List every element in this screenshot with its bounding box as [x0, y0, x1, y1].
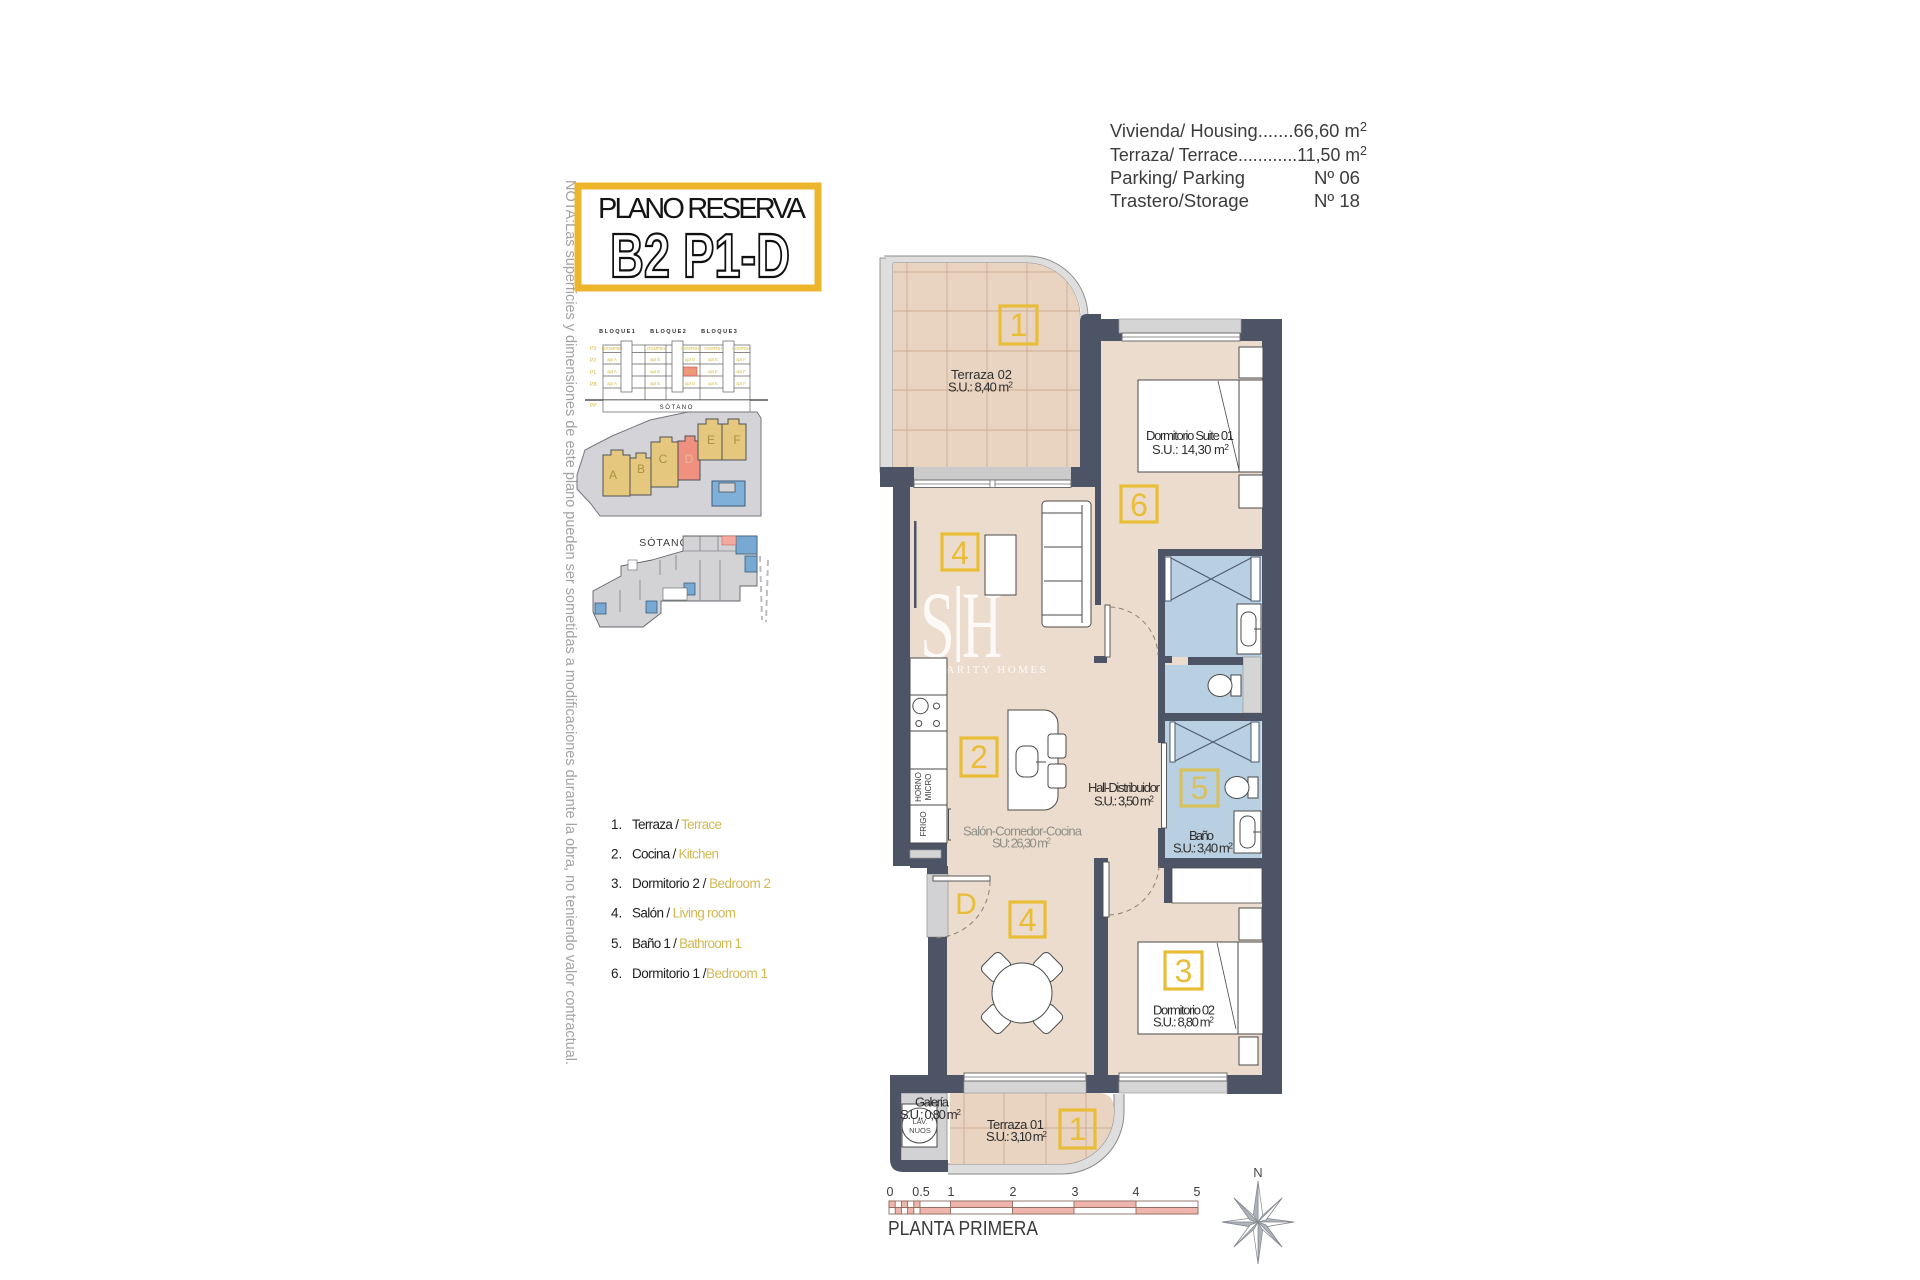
svg-text:AGMFBH: AGMFBH: [681, 346, 699, 351]
svg-text:S.U.: 3,10 m2: S.U.: 3,10 m2: [986, 1129, 1047, 1144]
svg-text:2.: 2.: [611, 847, 622, 862]
svg-text:LOGMFBH: LOGMFBH: [602, 346, 623, 351]
svg-text:apt D: apt D: [685, 357, 695, 362]
svg-text:S Ó T A N O: S Ó T A N O: [660, 404, 693, 411]
svg-text:PLANO RESERVA: PLANO RESERVA: [598, 193, 807, 225]
svg-text:E: E: [707, 433, 715, 447]
svg-text:S.U.: 8,40 m2: S.U.: 8,40 m2: [948, 380, 1013, 395]
svg-text:D: D: [955, 888, 977, 921]
svg-text:F: F: [733, 433, 740, 447]
svg-text:4: 4: [951, 535, 969, 571]
svg-text:C: C: [659, 452, 668, 466]
svg-text:P3: P3: [590, 346, 596, 352]
svg-text:apt E: apt E: [708, 381, 718, 386]
svg-text:P2: P2: [590, 358, 596, 364]
svg-text:Trastero/Storage: Trastero/Storage: [1110, 190, 1249, 211]
svg-text:4.: 4.: [611, 906, 622, 921]
svg-text:NUOS: NUOS: [909, 1126, 931, 1135]
svg-text:Vivienda/ Housing.......66,60: Vivienda/ Housing.......66,60 m2: [1110, 119, 1367, 141]
svg-text:FRIGO: FRIGO: [919, 811, 928, 836]
svg-text:SÓTANO: SÓTANO: [639, 536, 689, 549]
svg-text:P1: P1: [590, 370, 596, 376]
svg-text:A: A: [609, 468, 617, 482]
svg-text:Salón / Living room: Salón / Living room: [632, 906, 736, 921]
svg-text:HORNO: HORNO: [914, 772, 923, 802]
svg-text:Dormitorio Suite 01: Dormitorio Suite 01: [1146, 428, 1234, 443]
svg-text:apt F: apt F: [736, 357, 746, 362]
svg-text:N: N: [1253, 1165, 1262, 1180]
svg-text:Dormitorio 2 / Bedroom 2: Dormitorio 2 / Bedroom 2: [632, 876, 771, 891]
svg-text:apt B: apt B: [650, 357, 660, 362]
svg-text:0: 0: [887, 1185, 894, 1199]
svg-text:S.U.: 0,80 m2: S.U.: 0,80 m2: [900, 1107, 961, 1122]
svg-text:apt D: apt D: [685, 369, 695, 374]
svg-text:B: B: [637, 462, 645, 476]
svg-text:B L O Q U E 1: B L O Q U E 1: [599, 329, 635, 335]
svg-text:apt F: apt F: [736, 381, 746, 386]
svg-text:Nº 18: Nº 18: [1314, 190, 1360, 211]
svg-text:SU: 26,30 m2: SU: 26,30 m2: [992, 836, 1051, 851]
svg-text:apt E: apt E: [708, 369, 718, 374]
svg-text:apt A: apt A: [607, 369, 617, 374]
svg-text:S.U.: 3,40 m2: S.U.: 3,40 m2: [1173, 841, 1233, 856]
svg-text:apt A: apt A: [607, 357, 617, 362]
svg-text:1.: 1.: [611, 817, 622, 832]
svg-text:NOTA:Las superficies y dimensi: NOTA:Las superficies y dimensiones de es…: [562, 180, 578, 1065]
svg-text:Terraza/ Terrace............11: Terraza/ Terrace............11,50 m2: [1110, 143, 1367, 165]
svg-text:apt F: apt F: [736, 369, 746, 374]
svg-text:LOGMFBH: LOGMFBH: [645, 346, 666, 351]
svg-text:S.U.: 14,30 m2: S.U.: 14,30 m2: [1152, 442, 1229, 457]
svg-text:5.: 5.: [611, 936, 622, 951]
svg-text:3: 3: [1072, 1185, 1079, 1199]
svg-text:3.: 3.: [611, 876, 622, 891]
svg-text:Parking/ Parking: Parking/ Parking: [1110, 167, 1245, 188]
svg-text:1: 1: [1069, 1111, 1087, 1147]
svg-text:Terraza / Terrace: Terraza / Terrace: [632, 817, 722, 832]
svg-text:apt E: apt E: [708, 357, 718, 362]
svg-text:0.5: 0.5: [912, 1185, 929, 1199]
svg-text:D: D: [685, 452, 694, 466]
svg-text:1: 1: [1010, 307, 1028, 343]
svg-text:S.U.: 8,80 m2: S.U.: 8,80 m2: [1153, 1015, 1214, 1030]
svg-text:MICRO: MICRO: [924, 774, 933, 801]
svg-text:PP: PP: [590, 403, 597, 409]
svg-text:4: 4: [1019, 902, 1037, 938]
svg-text:PB: PB: [590, 382, 597, 388]
svg-text:AGMFBH: AGMFBH: [732, 346, 750, 351]
svg-text:S.U.: 3,50 m2: S.U.: 3,50 m2: [1094, 794, 1154, 809]
svg-text:apt B: apt B: [650, 381, 660, 386]
svg-text:2: 2: [970, 739, 988, 775]
svg-text:4: 4: [1133, 1185, 1140, 1199]
svg-text:B L O Q U E 3: B L O Q U E 3: [701, 329, 737, 335]
svg-text:B L O Q U E 2: B L O Q U E 2: [650, 329, 686, 335]
svg-text:B2 P1-D: B2 P1-D: [610, 222, 790, 291]
svg-text:Cocina / Kitchen: Cocina / Kitchen: [632, 847, 719, 862]
svg-text:6.: 6.: [611, 966, 622, 981]
svg-text:AGMFBH: AGMFBH: [704, 346, 722, 351]
svg-text:Nº 06: Nº 06: [1314, 167, 1360, 188]
svg-text:Dormitorio 1 /Bedroom 1: Dormitorio 1 /Bedroom 1: [632, 966, 768, 981]
svg-text:6: 6: [1130, 487, 1148, 523]
svg-text:5: 5: [1194, 1185, 1201, 1199]
svg-text:2: 2: [1010, 1185, 1017, 1199]
svg-text:1: 1: [948, 1185, 955, 1199]
svg-text:5: 5: [1191, 770, 1209, 806]
svg-text:3: 3: [1175, 953, 1193, 989]
svg-text:apt D: apt D: [685, 381, 695, 386]
svg-text:apt A: apt A: [607, 381, 617, 386]
svg-text:Baño 1 / Bathroom 1: Baño 1 / Bathroom 1: [632, 936, 742, 951]
svg-text:apt B: apt B: [650, 369, 660, 374]
svg-text:PLANTA PRIMERA: PLANTA PRIMERA: [888, 1218, 1039, 1240]
